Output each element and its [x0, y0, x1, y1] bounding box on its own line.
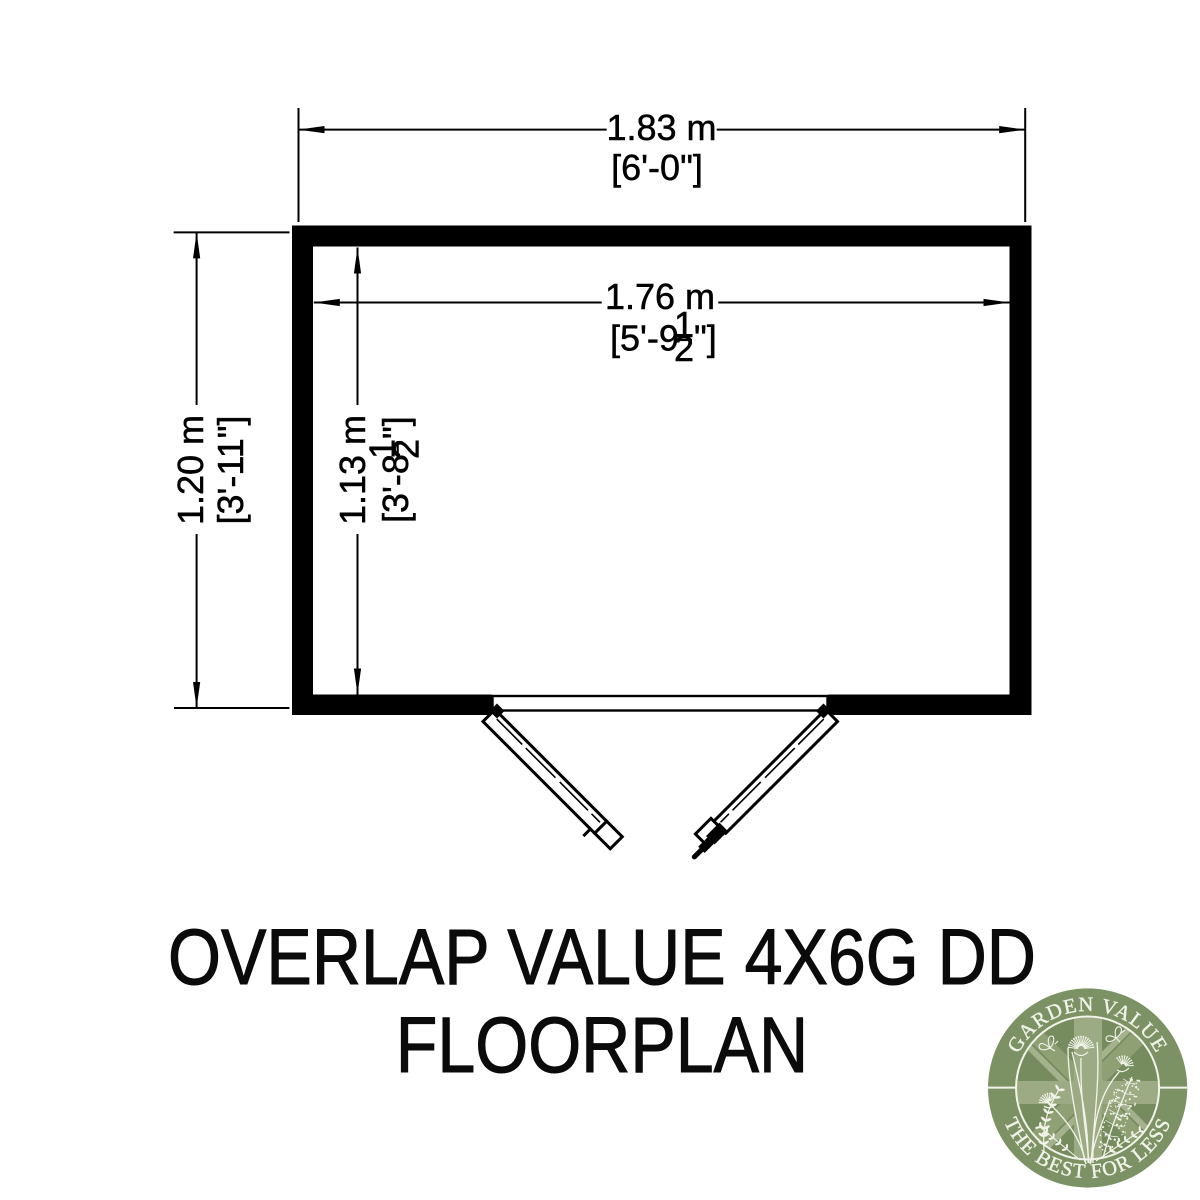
svg-text:OVERLAP VALUE 4X6G DD: OVERLAP VALUE 4X6G DD — [168, 912, 1036, 1001]
svg-text:[6'-0"]: [6'-0"] — [611, 147, 703, 188]
svg-text:[3'-8: [3'-8 — [375, 454, 416, 523]
svg-text:"]: "] — [375, 416, 416, 439]
svg-text:2: 2 — [674, 328, 694, 369]
svg-text:1.83 m: 1.83 m — [606, 107, 716, 148]
svg-text:[5'-9: [5'-9 — [610, 317, 679, 358]
svg-text:FLOORPLAN: FLOORPLAN — [396, 1000, 808, 1089]
svg-text:1.76 m: 1.76 m — [605, 276, 715, 317]
svg-text:[3'-11"]: [3'-11"] — [210, 415, 251, 524]
svg-text:2: 2 — [386, 439, 427, 459]
svg-text:1.20 m: 1.20 m — [170, 415, 211, 525]
svg-text:1.13 m: 1.13 m — [332, 415, 373, 525]
svg-text:"]: "] — [694, 317, 717, 358]
